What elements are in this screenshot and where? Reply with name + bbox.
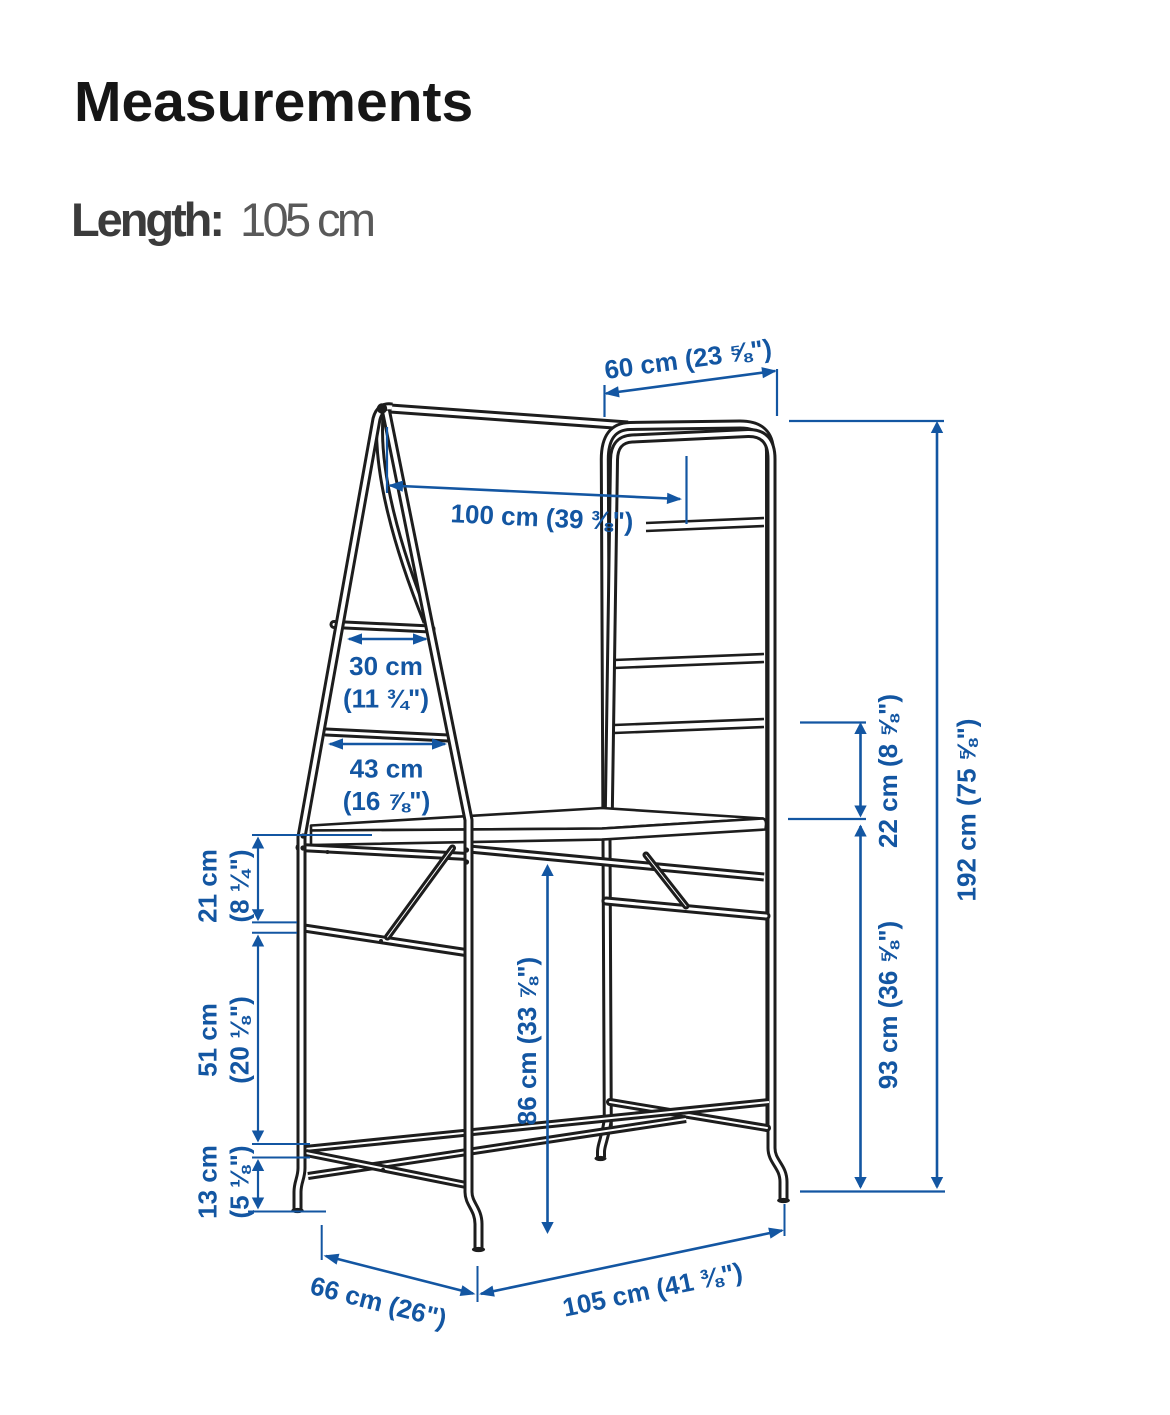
svg-text:30 cm: 30 cm [349,651,423,681]
svg-text:21 cm: 21 cm [193,849,223,923]
svg-text:93 cm (36 ⅝"): 93 cm (36 ⅝") [873,921,903,1089]
svg-text:105 cm: 105 cm [240,193,376,246]
svg-text:13 cm: 13 cm [193,1145,223,1219]
svg-text:Length:: Length: [71,193,225,246]
svg-text:43 cm: 43 cm [350,754,424,784]
svg-text:(8 ¼"): (8 ¼") [225,849,255,922]
svg-text:(20 ⅛"): (20 ⅛") [225,996,255,1083]
svg-text:(11 ¾"): (11 ¾") [343,684,429,714]
svg-text:(16 ⅞"): (16 ⅞") [343,786,430,816]
svg-text:22 cm (8 ⅝"): 22 cm (8 ⅝") [873,694,903,848]
svg-text:(5 ⅛"): (5 ⅛") [225,1145,255,1218]
svg-text:51 cm: 51 cm [193,1003,223,1077]
svg-text:86 cm (33 ⅞"): 86 cm (33 ⅞") [512,957,542,1125]
svg-text:192 cm (75 ⅝"): 192 cm (75 ⅝") [952,719,982,902]
svg-text:Measurements: Measurements [74,70,473,134]
